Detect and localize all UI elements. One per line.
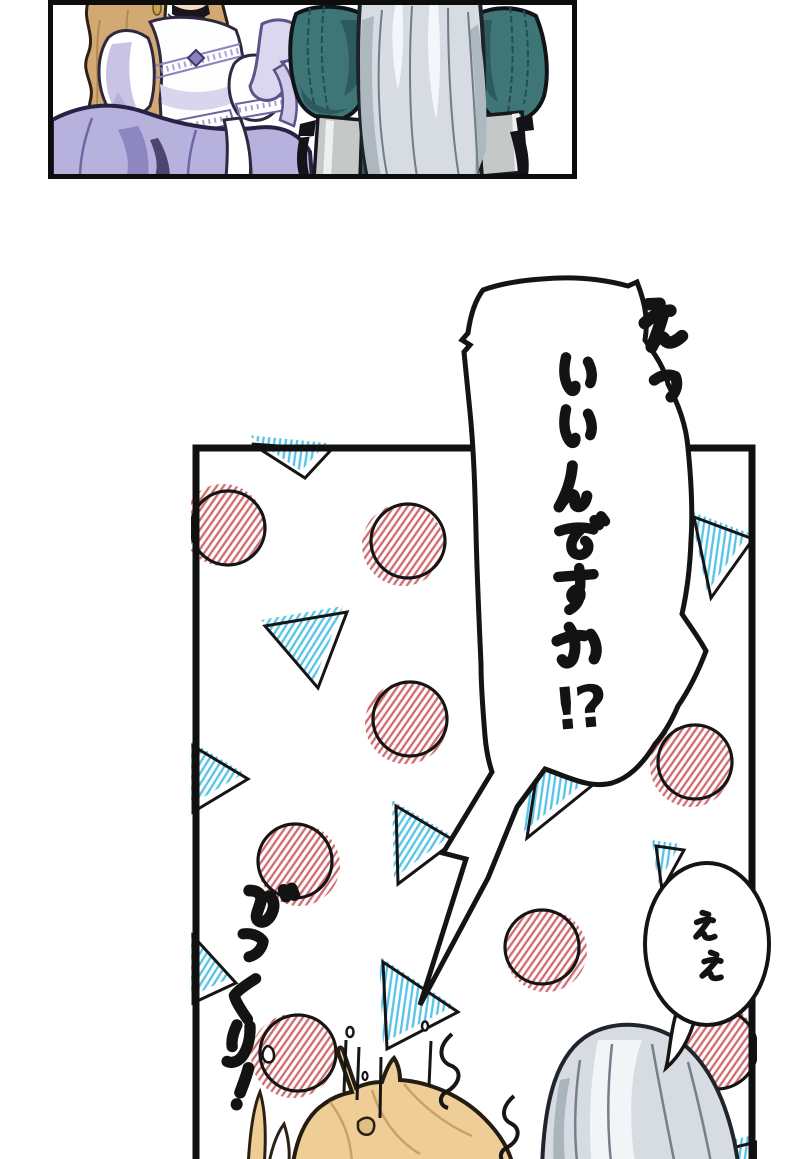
droplet <box>422 1022 428 1031</box>
droplet <box>363 1072 368 1080</box>
top-panel <box>51 0 575 182</box>
character-silver-back <box>290 2 547 182</box>
droplet <box>347 1027 354 1037</box>
polka-dot <box>505 910 587 992</box>
hair-swirl <box>358 1118 374 1135</box>
cuff-left <box>314 116 362 178</box>
bubble-outline <box>645 863 769 1025</box>
character-blonde-girl <box>52 1 312 178</box>
manga-page: !? えっ いいんですか!? ええ びっくり! <box>0 0 800 1159</box>
polka-dot <box>365 682 447 764</box>
dot-mark <box>263 1046 274 1062</box>
interrobang-text: !? <box>550 672 607 744</box>
manga-artwork: !? <box>0 0 800 1159</box>
